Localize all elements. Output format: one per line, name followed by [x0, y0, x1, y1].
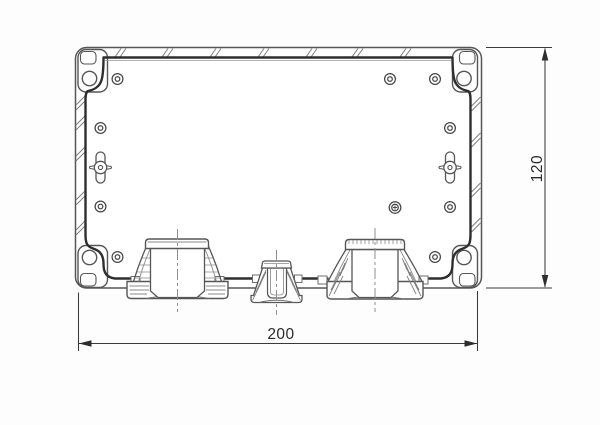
screw-boss [445, 202, 456, 213]
arrow-left-icon [79, 340, 92, 346]
screw-boss [95, 123, 106, 134]
drawing-canvas: 120 200 [0, 0, 600, 425]
screw-boss [112, 252, 123, 263]
dimension-height: 120 [486, 48, 552, 289]
enclosure-outline [76, 48, 482, 289]
enclosure [76, 48, 482, 289]
gland-tab [318, 276, 327, 284]
height-dimension-label: 120 [529, 155, 546, 182]
slot-center-hole [448, 165, 452, 169]
arrow-down-icon [542, 275, 549, 288]
screw-boss [430, 74, 441, 85]
screw-boss [112, 74, 123, 85]
corner-block-rib [460, 274, 476, 287]
technical-drawing: 120 200 [0, 0, 600, 425]
marked-screw-boss [389, 202, 401, 214]
gland-tab [295, 275, 303, 283]
screw-boss [95, 201, 106, 212]
screw-boss [385, 74, 396, 85]
corner-screw-hole [457, 250, 471, 264]
corner-screw-hole [82, 250, 96, 264]
corner-block-rib [81, 52, 97, 65]
screw-boss [430, 252, 441, 263]
width-dimension-label: 200 [267, 326, 294, 343]
corner-block-rib [81, 274, 97, 287]
corner-screw-hole [457, 71, 471, 85]
corner-screw-hole [82, 71, 96, 85]
slot-center-hole [98, 165, 102, 169]
corner-block-rib [460, 52, 476, 65]
arrow-up-icon [542, 48, 549, 61]
arrow-right-icon [465, 340, 478, 346]
screw-boss [445, 123, 456, 134]
